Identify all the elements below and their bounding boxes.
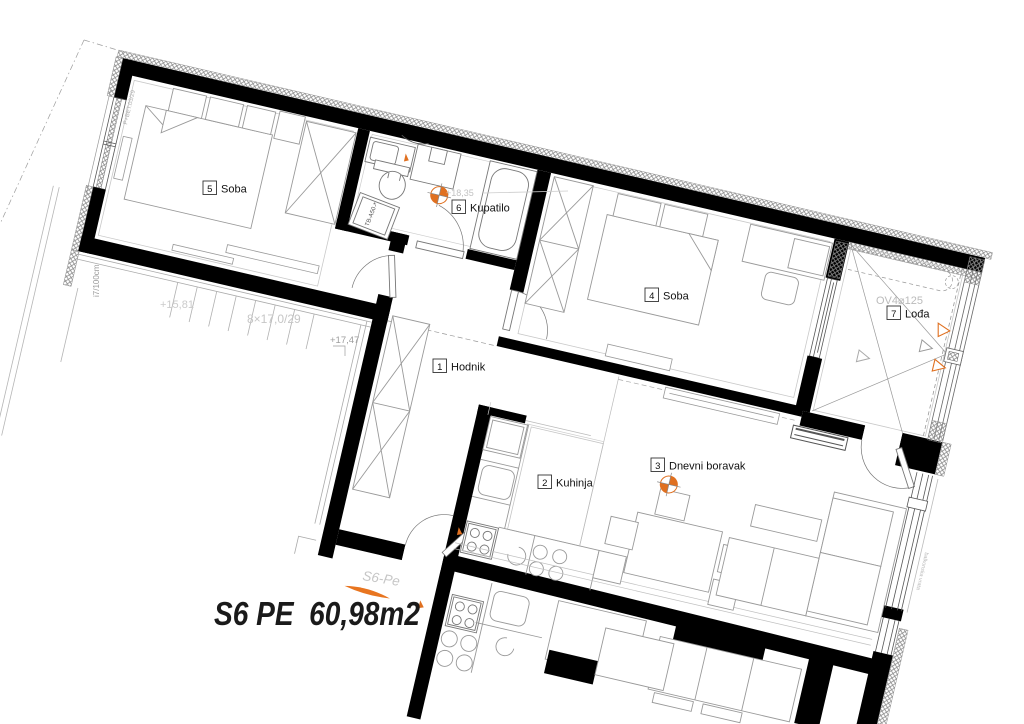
svg-text:Soba: Soba xyxy=(663,291,690,303)
svg-text:i7/100cm: i7/100cm xyxy=(92,264,101,297)
svg-text:+18,35: +18,35 xyxy=(446,188,474,198)
svg-text:6: 6 xyxy=(456,203,461,214)
svg-text:+15,81: +15,81 xyxy=(160,299,194,311)
svg-text:Kupatilo: Kupatilo xyxy=(470,203,510,215)
svg-text:Hodnik: Hodnik xyxy=(451,362,486,374)
svg-text:8×17,0/29: 8×17,0/29 xyxy=(247,312,301,326)
svg-text:Soba: Soba xyxy=(221,184,248,196)
svg-text:5: 5 xyxy=(207,184,212,195)
svg-text:1: 1 xyxy=(437,362,442,373)
svg-text:Dnevni boravak: Dnevni boravak xyxy=(669,461,746,473)
svg-text:S6 PE 60,98m2: S6 PE 60,98m2 xyxy=(214,595,421,632)
svg-text:Lođa: Lođa xyxy=(905,309,930,321)
svg-text:7: 7 xyxy=(891,309,896,320)
svg-text:2: 2 xyxy=(542,478,547,489)
svg-text:4: 4 xyxy=(649,291,654,302)
svg-text:+17,47: +17,47 xyxy=(330,335,359,346)
svg-text:3: 3 xyxy=(655,461,660,472)
svg-text:Kuhinja: Kuhinja xyxy=(556,478,594,490)
svg-text:OV4⌀125: OV4⌀125 xyxy=(876,295,923,307)
